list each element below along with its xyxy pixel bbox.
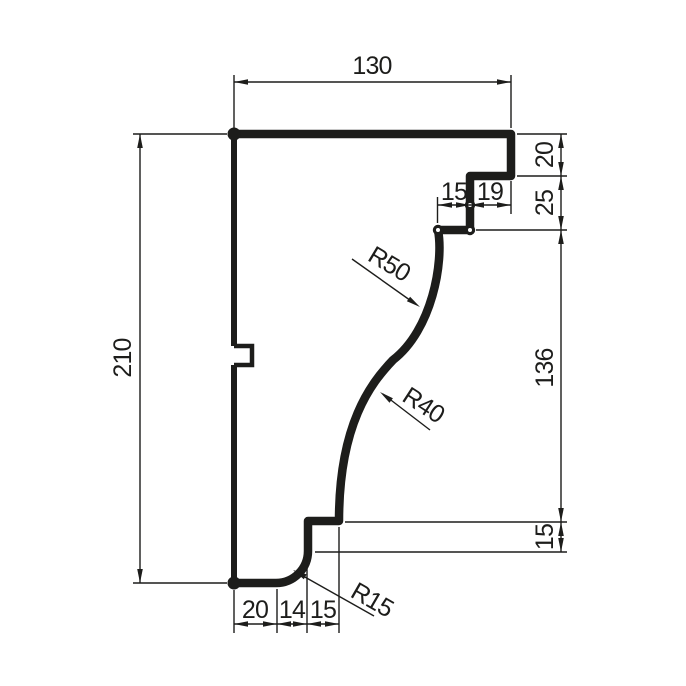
radius-label-upper: R50	[363, 241, 415, 287]
dim-label-right-step: 25	[531, 190, 559, 216]
dimension-top-width: 130	[234, 52, 511, 128]
dim-label-inner-right: 19	[477, 178, 503, 206]
radius-label-bottom: R15	[346, 577, 398, 623]
cornice-profile-drawing: 130 210 20 25 136 15	[0, 0, 686, 686]
dim-label-right-lower: 15	[531, 524, 559, 550]
node-marker	[434, 226, 441, 233]
back-notch	[234, 346, 252, 365]
leader-r50: R50	[352, 241, 420, 307]
profile-outline	[228, 128, 512, 590]
leader-r40: R40	[380, 382, 449, 430]
dim-label-bottom-middle: 14	[279, 596, 306, 624]
leader-r15: R15	[293, 570, 398, 623]
corner-dot-bottom-left	[228, 577, 241, 590]
dim-label-bottom-left: 20	[242, 596, 268, 624]
corner-dot-top-left	[228, 128, 241, 141]
radius-label-lower: R40	[398, 382, 450, 429]
dim-label-left-height: 210	[109, 338, 137, 377]
technical-drawing-canvas: 130 210 20 25 136 15	[0, 0, 686, 686]
dim-label-right-top: 20	[531, 142, 559, 168]
dim-label-inner-left: 15	[441, 178, 467, 206]
dim-label-top-width: 130	[352, 52, 391, 80]
dimension-left-height: 210	[109, 134, 227, 583]
node-marker	[466, 226, 473, 233]
dim-label-right-curve: 136	[531, 348, 559, 387]
dim-label-bottom-right: 15	[310, 596, 336, 624]
